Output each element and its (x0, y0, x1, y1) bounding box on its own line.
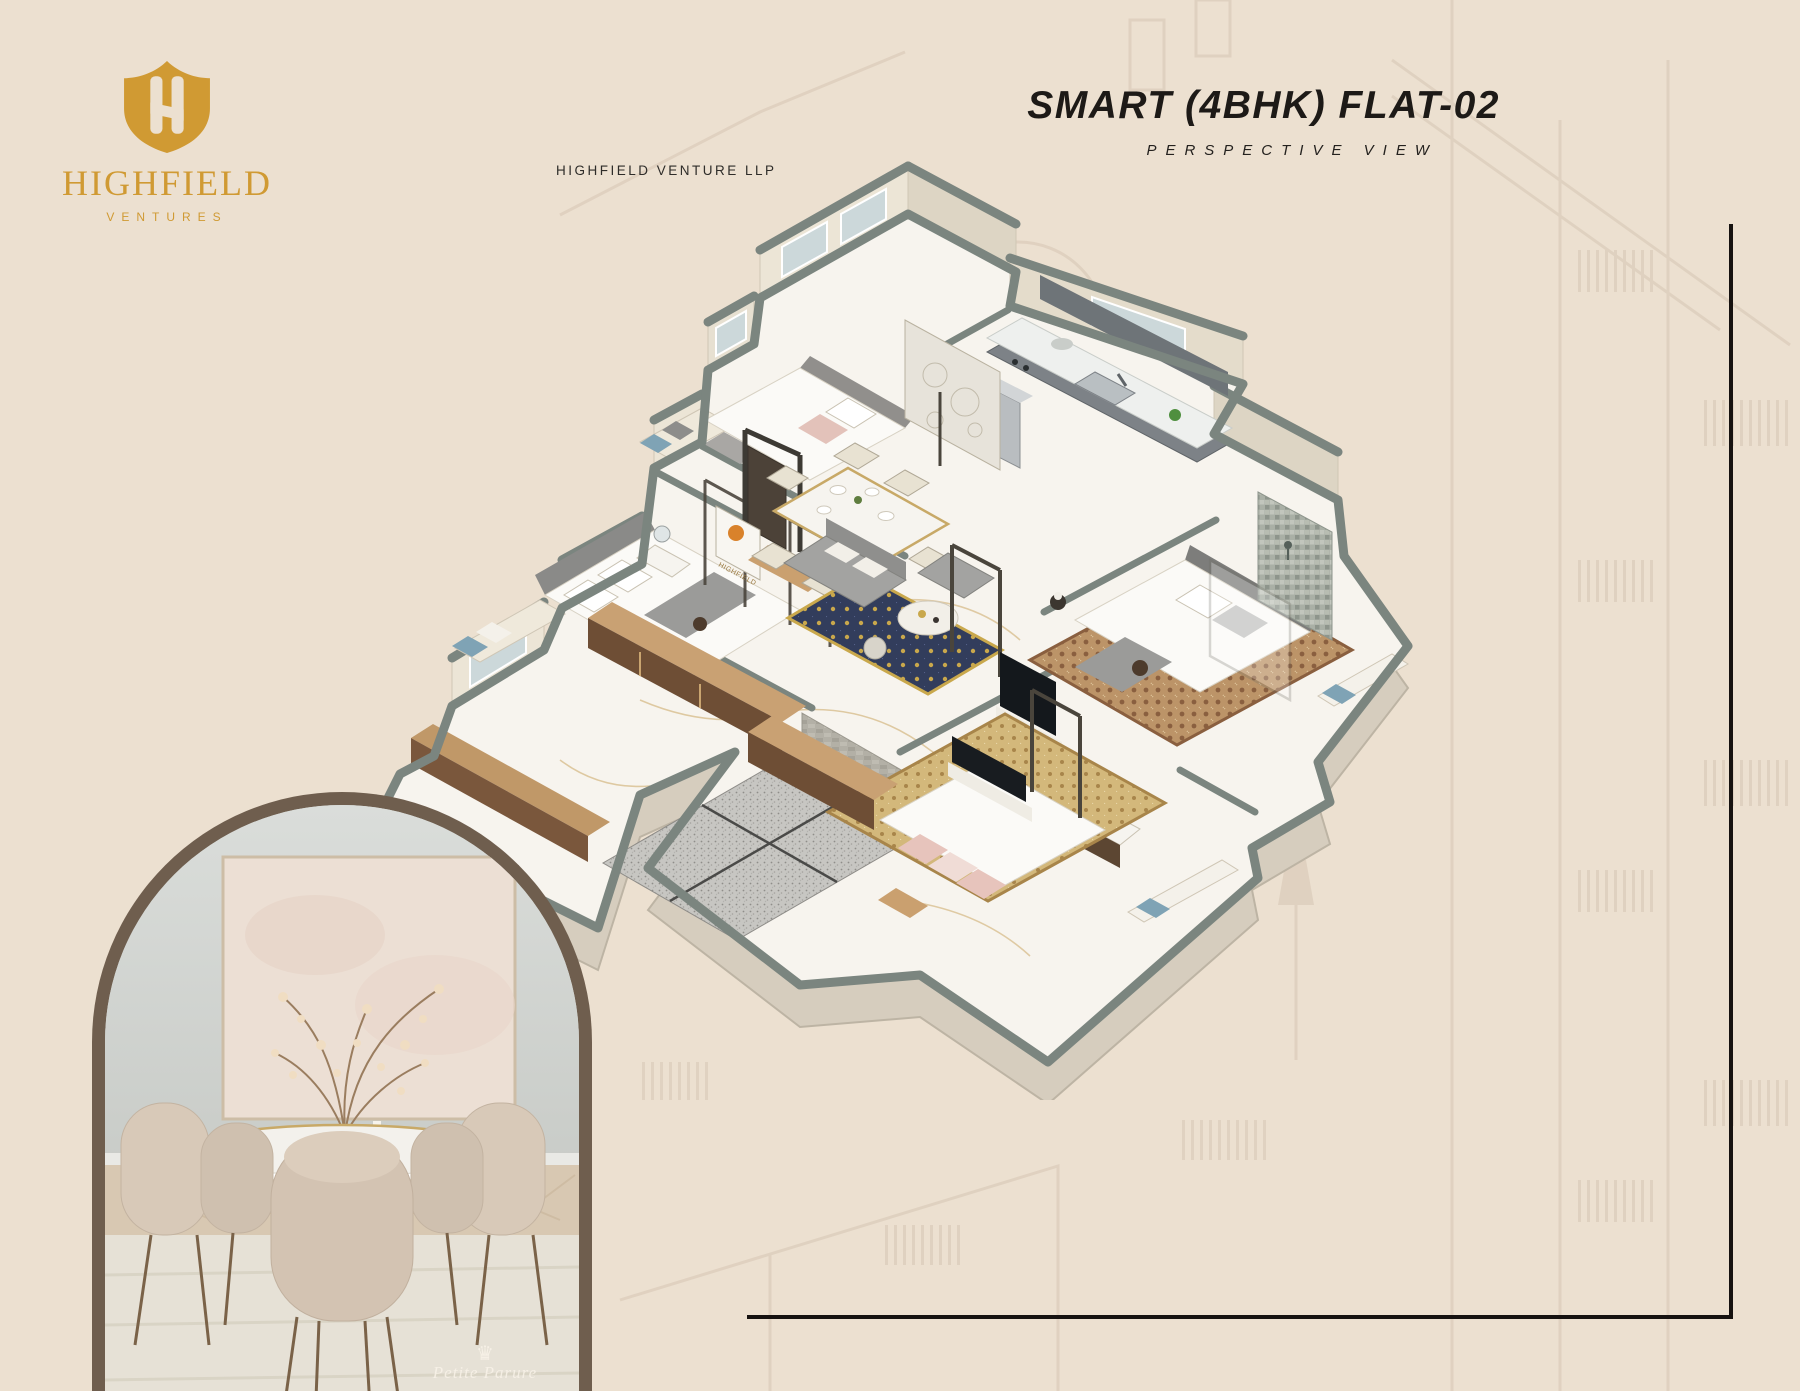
title-block: SMART (4BHK) FLAT-02 PERSPECTIVE VIEW (1027, 84, 1500, 159)
photo-watermark: ♛ Petite Parure (405, 1345, 565, 1383)
brochure-page: HIGHFIELD VENTURES HIGHFIELD VENTURE LLP… (0, 0, 1800, 1391)
shield-h-icon (119, 58, 215, 154)
brand-name: HIGHFIELD (52, 162, 282, 204)
frame-rule-horizontal (747, 1315, 1733, 1319)
watermark-text: Petite Parure (405, 1363, 565, 1383)
crown-icon: ♛ (405, 1345, 565, 1363)
page-title: SMART (4BHK) FLAT-02 (1027, 84, 1500, 128)
arch-photo: ♛ Petite Parure (92, 792, 592, 1391)
dining-photo-art (105, 805, 579, 1391)
page-subtitle: PERSPECTIVE VIEW (1027, 142, 1438, 159)
wall-artwork (223, 857, 515, 1119)
brand-logo-block: HIGHFIELD VENTURES (52, 58, 282, 224)
brand-tagline: VENTURES (52, 210, 282, 224)
frame-rule-vertical (1729, 224, 1733, 1317)
